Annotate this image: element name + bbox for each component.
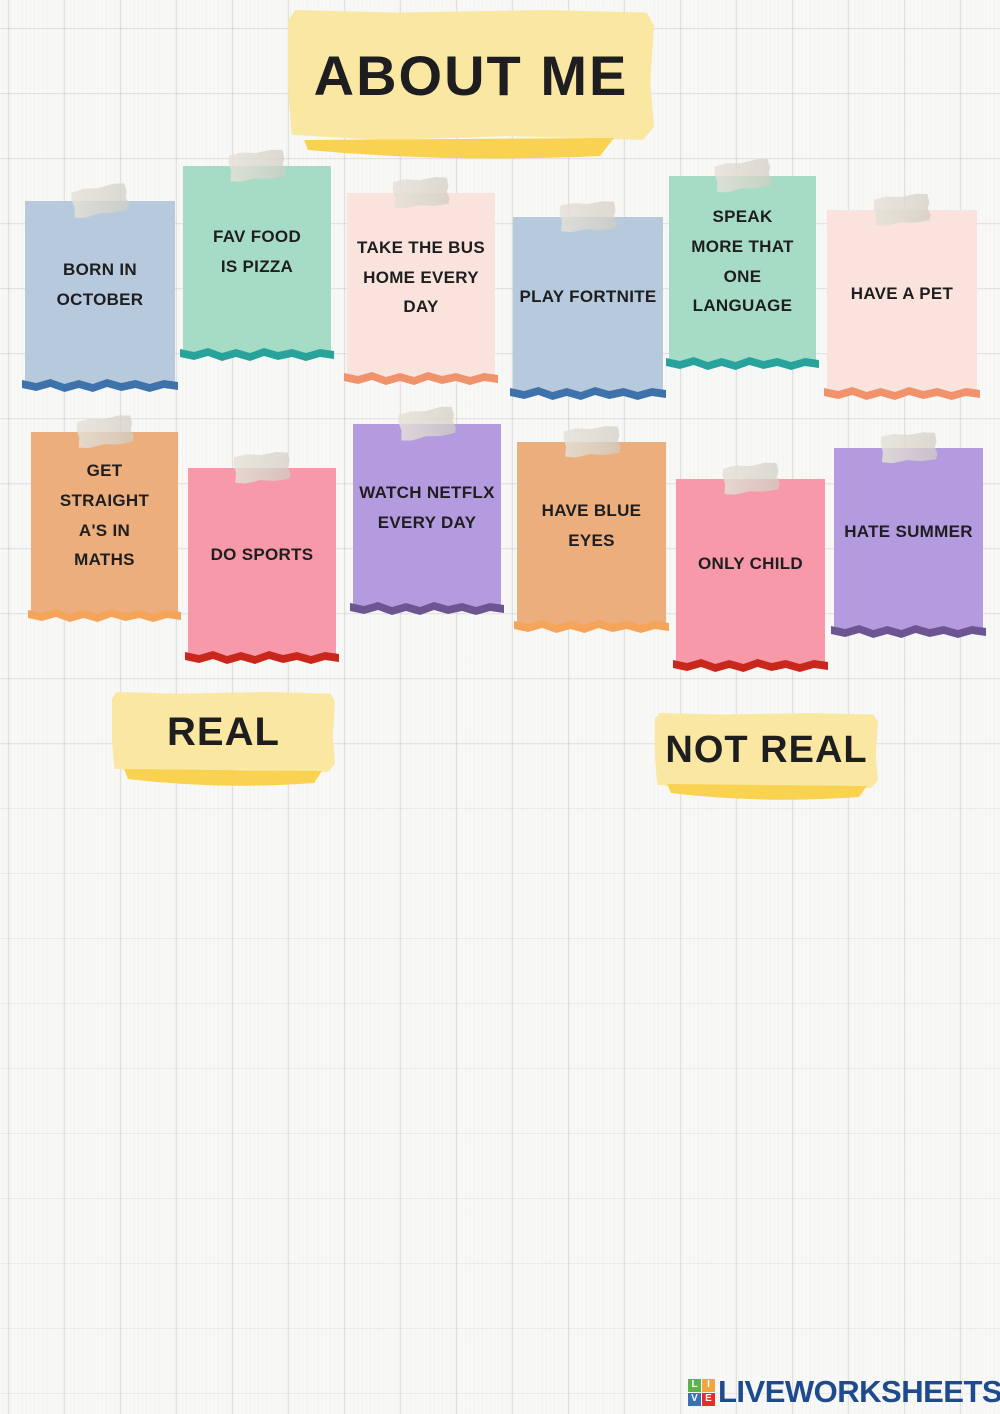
note-hate-summer[interactable]: HATE SUMMER [834, 448, 983, 639]
note-text: HATE SUMMER [840, 448, 977, 615]
note-speak-more-languages[interactable]: SPEAK MORE THAT ONE LANGUAGE [669, 176, 816, 371]
brand-name: LIVEWORKSHEETS [718, 1374, 1000, 1410]
note-watch-netflx[interactable]: WATCH NETFLX EVERY DAY [353, 424, 501, 616]
worksheet-page: ABOUT ME BORN IN OCTOBER FAV FOOD IS PIZ… [0, 0, 1000, 1414]
note-have-blue-eyes[interactable]: HAVE BLUE EYES [517, 442, 666, 634]
torn-edge [180, 338, 334, 368]
note-straight-as-maths[interactable]: GET STRAIGHT A'S IN MATHS [31, 432, 178, 623]
note-do-sports[interactable]: DO SPORTS [188, 468, 336, 665]
note-text: GET STRAIGHT A'S IN MATHS [37, 432, 172, 599]
note-text: PLAY FORTNITE [519, 217, 657, 377]
torn-edge [344, 362, 498, 392]
page-title-text: ABOUT ME [314, 43, 629, 108]
note-only-child[interactable]: ONLY CHILD [676, 479, 825, 673]
torn-edge [666, 347, 819, 377]
category-label-not-real: NOT REAL [655, 713, 878, 788]
note-text: DO SPORTS [194, 468, 330, 641]
category-label-real: REAL [112, 692, 335, 772]
note-text: WATCH NETFLX EVERY DAY [359, 424, 495, 592]
note-text: BORN IN OCTOBER [31, 201, 169, 369]
note-play-fortnite[interactable]: PLAY FORTNITE [513, 217, 663, 401]
torn-edge [185, 641, 339, 671]
logo-square-v: V [688, 1393, 701, 1406]
page-title: ABOUT ME [288, 10, 654, 140]
liveworksheets-logo[interactable]: L I V E LIVEWORKSHEETS [688, 1374, 1000, 1410]
not-real-banner-shadow [663, 784, 871, 802]
liveworksheets-logo-icon: L I V E [688, 1379, 715, 1406]
logo-square-l: L [688, 1379, 701, 1392]
note-text: ONLY CHILD [682, 479, 819, 649]
torn-edge [510, 377, 666, 407]
title-banner-shadow [300, 138, 618, 160]
category-not-real-text: NOT REAL [665, 729, 867, 772]
note-text: SPEAK MORE THAT ONE LANGUAGE [675, 176, 810, 347]
torn-edge [28, 599, 181, 629]
category-real-text: REAL [167, 710, 280, 755]
torn-edge [514, 610, 669, 640]
real-banner-shadow [120, 769, 326, 788]
note-born-in-october[interactable]: BORN IN OCTOBER [25, 201, 175, 393]
note-text: HAVE A PET [833, 210, 971, 377]
note-have-a-pet[interactable]: HAVE A PET [827, 210, 977, 401]
note-text: TAKE THE BUS HOME EVERY DAY [353, 193, 489, 362]
torn-edge [22, 369, 178, 399]
torn-edge [824, 377, 980, 407]
torn-edge [831, 615, 986, 645]
torn-edge [673, 649, 828, 679]
logo-square-i: I [702, 1379, 715, 1392]
note-text: FAV FOOD IS PIZZA [189, 166, 325, 338]
note-text: HAVE BLUE EYES [523, 442, 660, 610]
note-take-the-bus[interactable]: TAKE THE BUS HOME EVERY DAY [347, 193, 495, 386]
note-fav-food-is-pizza[interactable]: FAV FOOD IS PIZZA [183, 166, 331, 362]
logo-square-e: E [702, 1393, 715, 1406]
torn-edge [350, 592, 504, 622]
